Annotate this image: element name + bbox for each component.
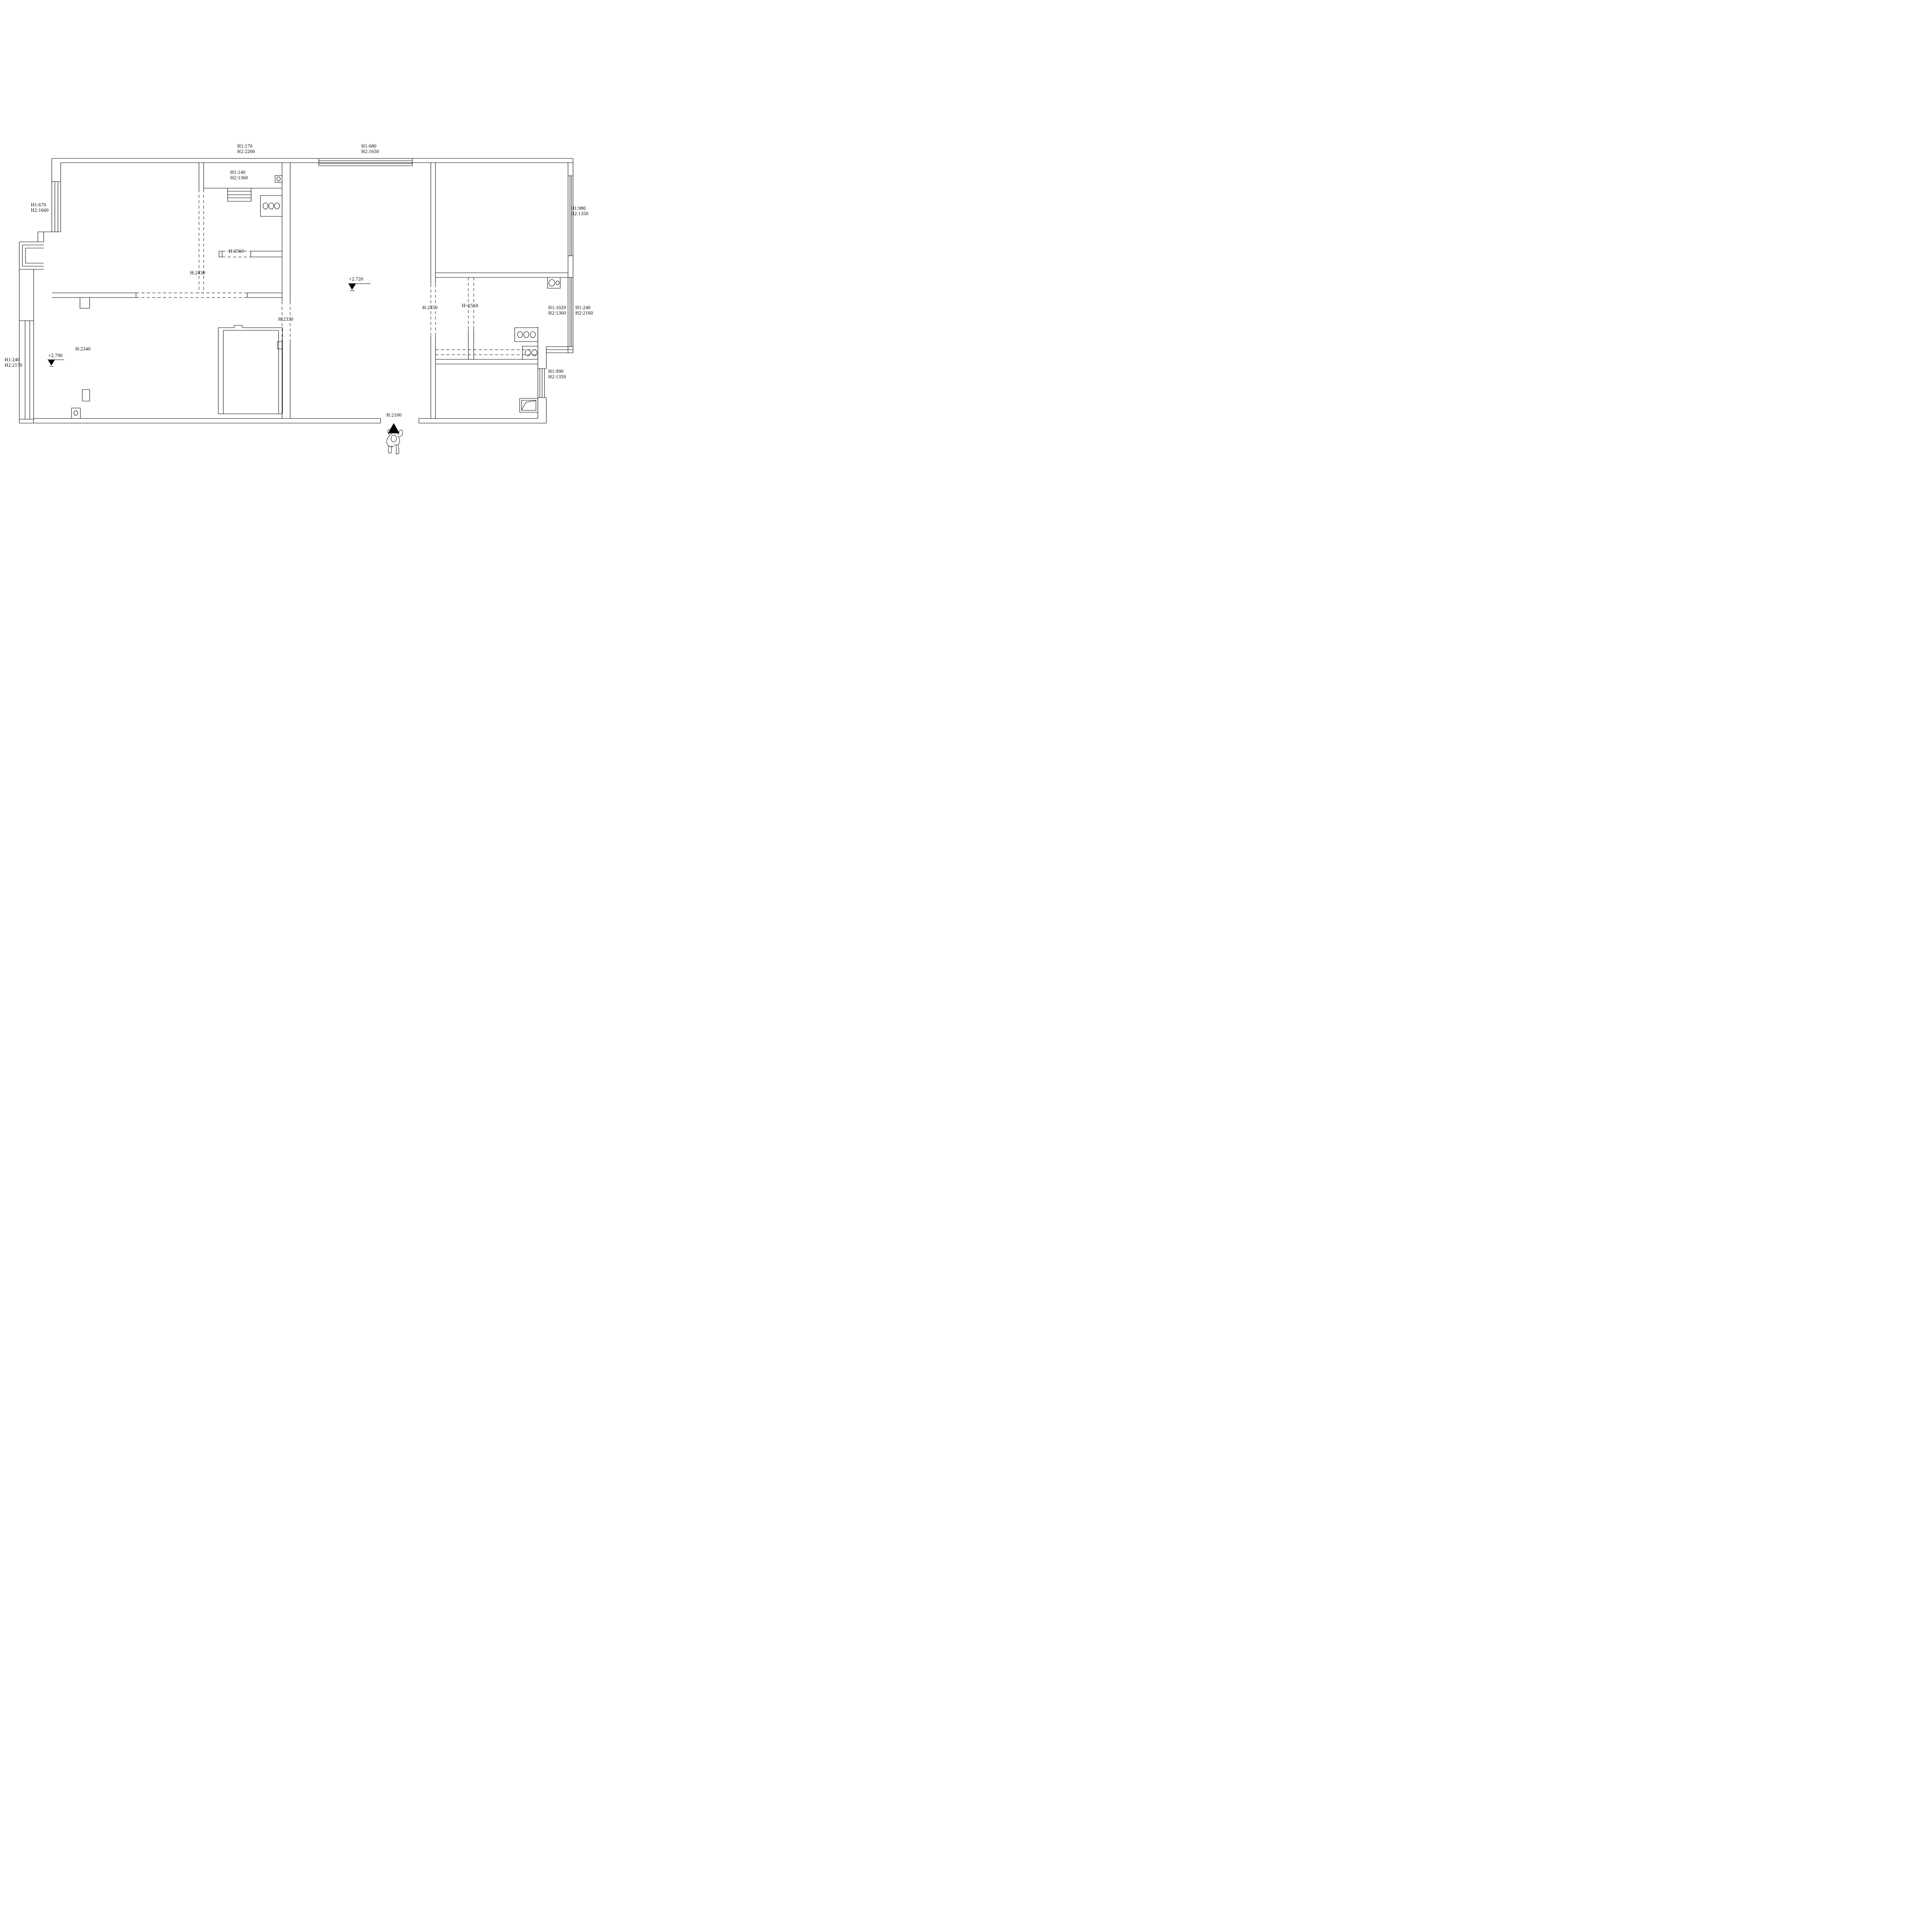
dim-label-line: H1:140 [230, 170, 248, 175]
shower-tray [520, 398, 538, 412]
dim-label-balcony-inner-window: H1:140H2:1360 [230, 170, 248, 180]
dim-label-line: H:2350 [422, 305, 437, 311]
level-marker-living [348, 284, 371, 291]
bath-fixture-two [522, 346, 538, 359]
dim-label-line: H2:2170 [5, 363, 22, 368]
dim-label-kitchen-door-height: H:2560 [229, 249, 244, 254]
window-symbols [25, 158, 571, 419]
dim-label-line: H1:240 [575, 305, 593, 311]
dim-label-line: H2:2160 [575, 311, 593, 316]
dim-label-balcony-top-window: H1:170H2:2200 [237, 144, 255, 154]
dim-label-line: H1:680 [361, 144, 379, 149]
dim-label-line: H:2330 [278, 317, 293, 322]
dim-label-line: +2.790 [48, 353, 63, 359]
dim-label-line: H1:980 [571, 206, 588, 211]
entry-arrow-icon [388, 423, 399, 433]
floor-plan-drawing [0, 0, 598, 598]
dim-label-entry-door-height: H:2100 [386, 413, 401, 418]
level-markers [48, 284, 371, 366]
dim-label-bedroom-door-height: H:2350 [422, 305, 437, 311]
floor-plan: H1:170H2:2200H1:140H2:1360H1:680H2:1650H… [0, 0, 598, 598]
dim-label-line: +2.720 [349, 277, 363, 282]
dim-label-br-bedroom-window: H1:990H2:1350 [548, 369, 566, 379]
dim-label-line: H:2100 [386, 413, 401, 418]
dim-label-line: H2:1650 [361, 149, 379, 155]
dim-label-line: H2:1660 [31, 208, 49, 213]
fixtures [71, 175, 560, 418]
dim-label-line: H1:240 [5, 357, 22, 363]
washbasin-counter [548, 277, 560, 288]
dim-label-line: H2:1360 [548, 311, 566, 316]
dim-label-left-bedroom-window: H1:670H2:1660 [31, 202, 49, 213]
dim-label-line: H1:990 [548, 369, 566, 374]
dim-label-line: H:2430 [190, 270, 205, 276]
balcony-drain [275, 175, 282, 182]
dim-label-left-lower-window: H1:240H2:2170 [5, 357, 22, 368]
dim-label-left-level: +2.790 [48, 353, 63, 359]
dim-label-line: H1:670 [31, 202, 49, 208]
dim-label-line: H2:1350 [571, 211, 588, 217]
floor-drain-box [71, 408, 80, 418]
dim-label-washroom-window: H1:1020H2:1360 [548, 305, 566, 316]
dim-label-living-top-window: H1:680H2:1650 [361, 144, 379, 154]
kitchen-cooktop [260, 196, 282, 216]
interior-walls [52, 163, 568, 418]
dim-label-left-room-height: H:2340 [75, 347, 90, 352]
dim-label-line: H=2560 [462, 303, 478, 309]
level-marker-left [48, 360, 64, 366]
dim-label-right-duct-window: H1:240H2:2160 [575, 305, 593, 316]
dim-label-line: H1:1020 [548, 305, 566, 311]
dim-label-right-bedroom-window: H1:980H2:1350 [571, 206, 588, 216]
dim-label-kitchen-opening-height: H:2430 [190, 270, 205, 276]
dim-label-living-level: +2.720 [349, 277, 363, 282]
dim-label-line: H2:2200 [237, 149, 255, 155]
dim-label-bath-door-height: H=2560 [462, 303, 478, 309]
dim-label-line: H2:1360 [230, 175, 248, 181]
dim-label-line: H:2560 [229, 249, 244, 254]
bath-fixture-three [515, 328, 538, 342]
dim-label-line: H2:1350 [548, 374, 566, 380]
dim-label-line: H1:170 [237, 144, 255, 149]
dim-label-hall-door-height: H:2330 [278, 317, 293, 322]
outer-walls [19, 158, 573, 423]
entry-symbols [387, 423, 403, 454]
dim-label-line: H:2340 [75, 347, 90, 352]
